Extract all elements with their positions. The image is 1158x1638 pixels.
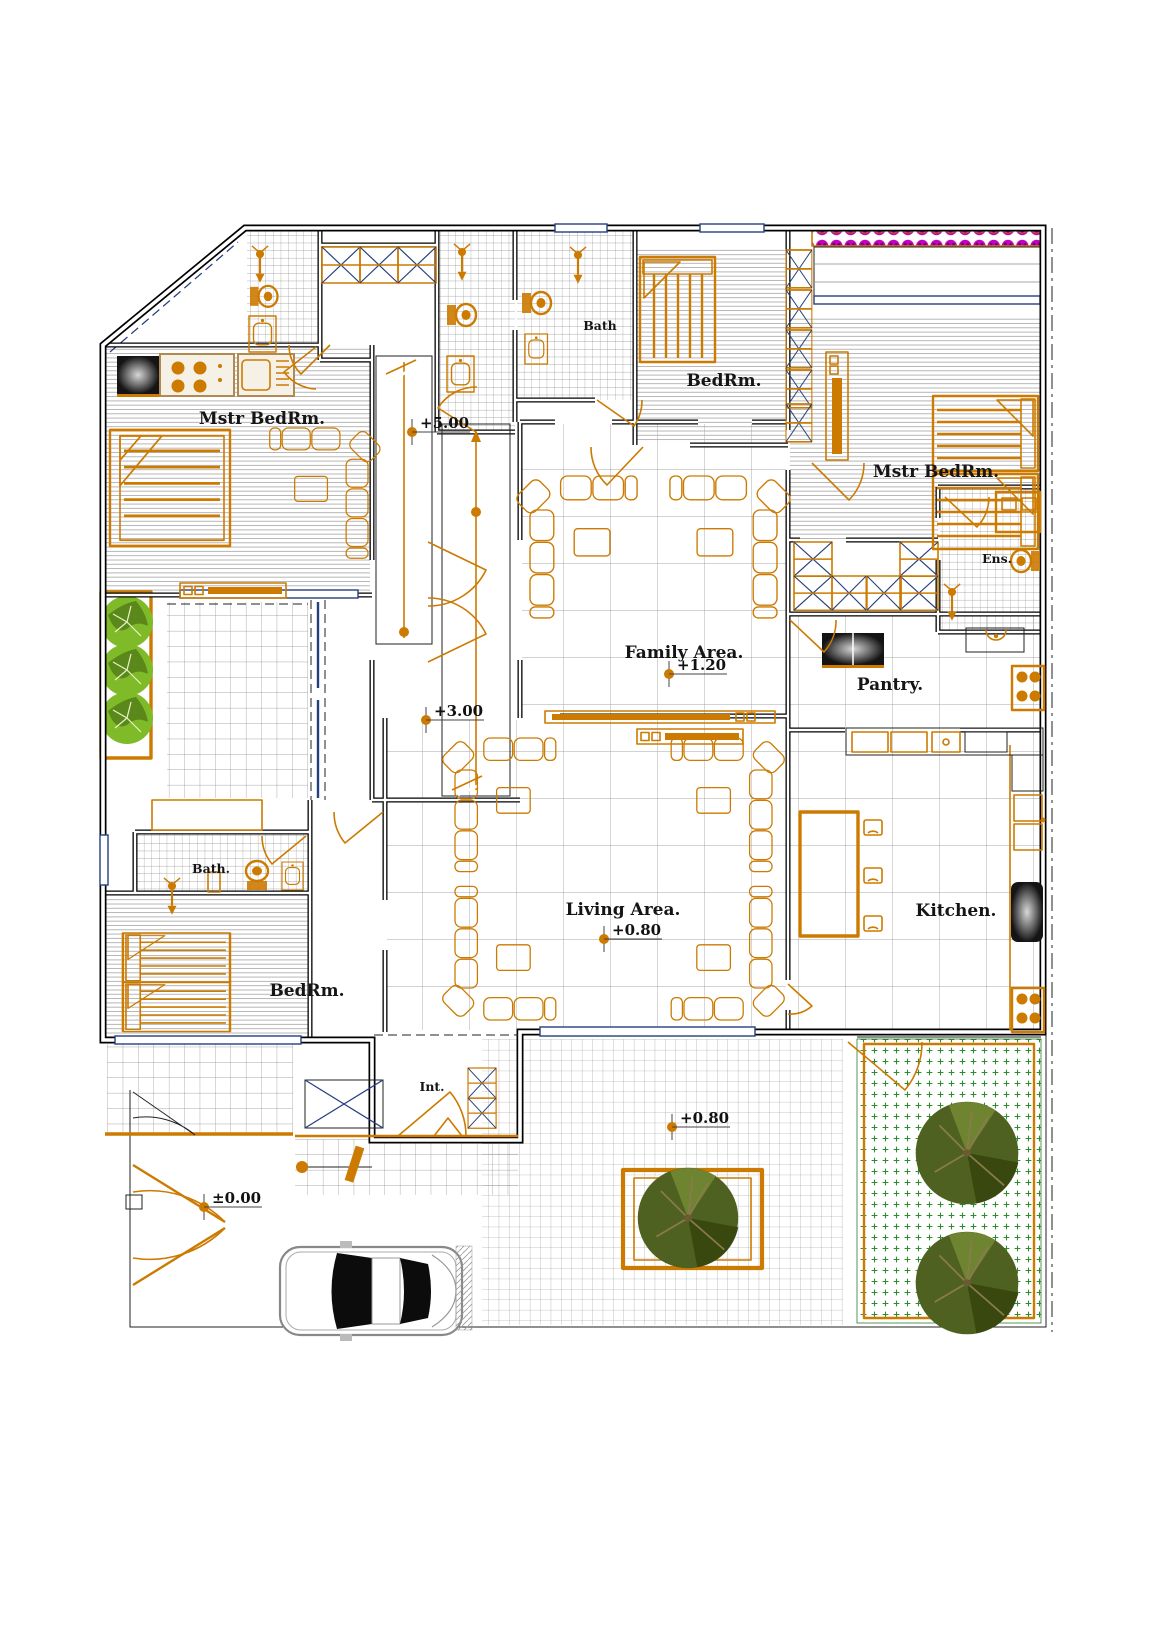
fridge-icon (1011, 882, 1043, 942)
dresser-icon (160, 354, 234, 396)
bench-icon (152, 800, 262, 830)
label-bath-lower: Bath. (192, 861, 230, 876)
dresser-strip-mstr-left (117, 354, 294, 397)
label-bath-top: Bath (583, 318, 617, 333)
car-icon (280, 1241, 462, 1341)
parking-bumper (456, 1246, 472, 1330)
elev-living: +0.80 (612, 921, 661, 939)
tree-icon (101, 692, 153, 744)
label-ensuite: Ens. (982, 551, 1012, 566)
label-mstr-bedrm-right: Mstr BedRm. (873, 462, 999, 482)
tree-icon (101, 596, 153, 648)
right-garden (857, 1039, 1041, 1334)
label-mstr-bedrm-left: Mstr BedRm. (199, 409, 325, 429)
tv-icon (117, 356, 159, 394)
label-bedrm-lower: BedRm. (269, 981, 344, 1001)
elev-mid-stairs: +3.00 (434, 702, 483, 720)
balcony-flower-planter (812, 229, 1041, 304)
label-living-area: Living Area. (566, 900, 681, 920)
label-pantry: Pantry. (857, 675, 923, 695)
tree-icon (916, 1232, 1019, 1335)
tree-icon (916, 1102, 1019, 1205)
label-bedrm-top: BedRm. (686, 371, 761, 391)
tree-icon (638, 1168, 738, 1268)
elev-ground: ±0.00 (212, 1189, 261, 1207)
elev-family: +1.20 (677, 656, 726, 674)
elev-terrace: +0.80 (680, 1109, 729, 1127)
floor-plan-canvas: Mstr BedRm. Bath BedRm. Mstr BedRm. Ens.… (0, 0, 1158, 1638)
label-kitchen: Kitchen. (916, 901, 997, 921)
label-interior: Int. (419, 1079, 444, 1094)
tree-icon (101, 644, 153, 696)
courtyard-planter (101, 592, 153, 758)
elev-upper-stairs: +5.00 (420, 414, 469, 432)
